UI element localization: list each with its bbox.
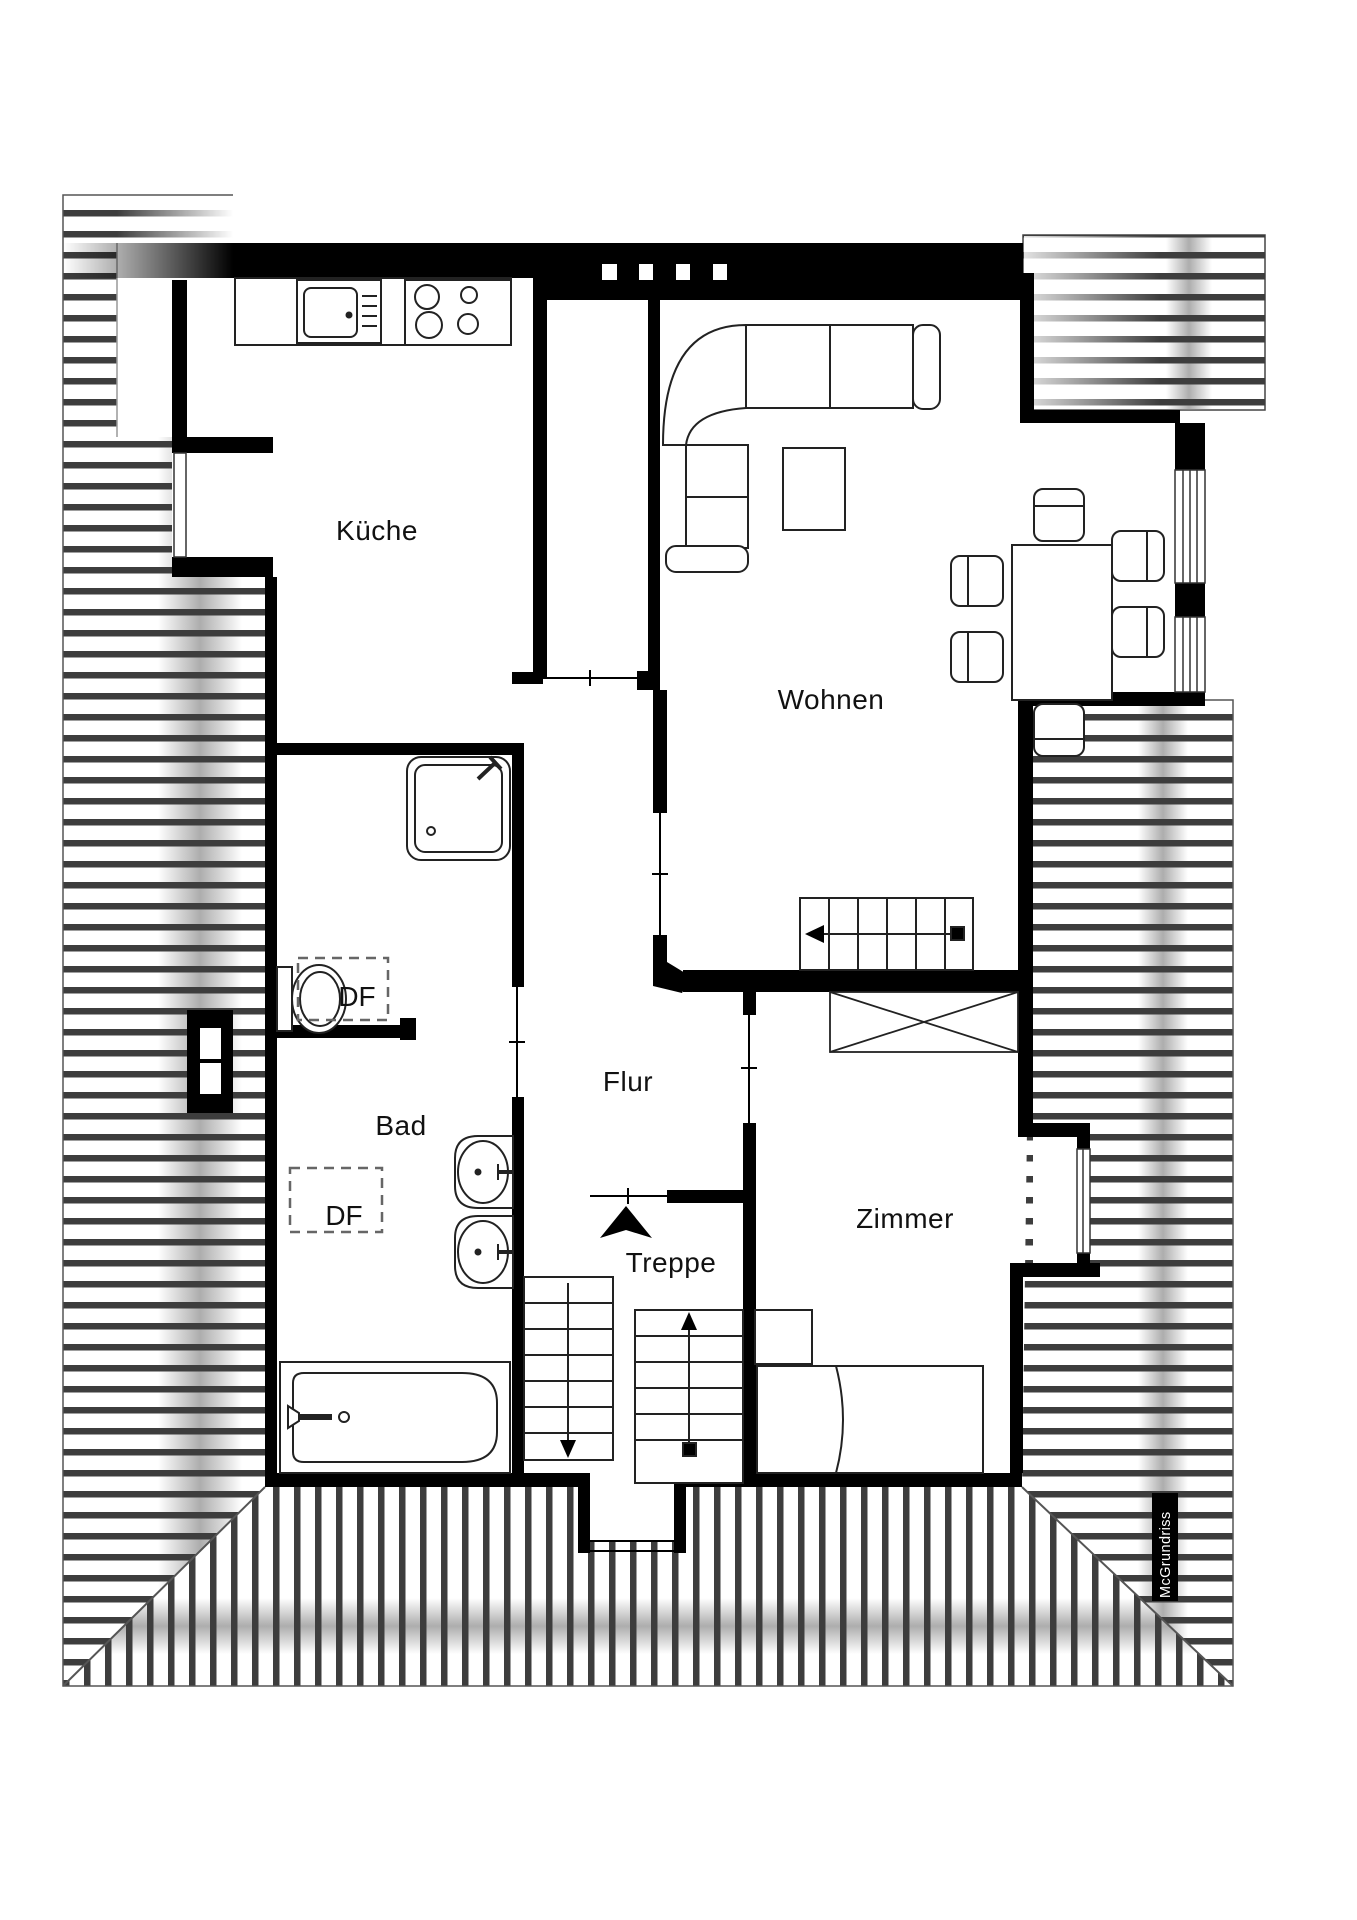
chair-icon <box>1034 489 1084 541</box>
wall-stair-landing <box>683 970 1033 992</box>
wall-living-west <box>648 300 660 672</box>
window-living-1 <box>1175 470 1205 583</box>
floorplan-canvas: Küche Wohnen Bad Flur Treppe Zimmer DF D… <box>0 0 1357 1920</box>
room-label-wohnen: Wohnen <box>778 684 885 715</box>
wall-south-left <box>265 1473 578 1487</box>
door-kitchen <box>543 670 637 686</box>
dining-table-icon <box>1012 545 1112 700</box>
bathtub-icon <box>280 1362 510 1473</box>
room-label-flur: Flur <box>603 1066 653 1097</box>
stairs-down-icon <box>800 898 973 970</box>
roof-hatch-left <box>63 195 265 1686</box>
toilet-icon <box>277 965 346 1033</box>
kitchen-sink-icon <box>297 280 381 343</box>
chair-icon <box>1034 704 1084 756</box>
door-living <box>652 813 668 935</box>
doors <box>509 670 757 1204</box>
door-treppe <box>590 1188 667 1204</box>
wall-dormer-bottom <box>1020 410 1180 423</box>
wall-flur-zimmer <box>743 1123 756 1473</box>
window-living-2 <box>1175 617 1205 692</box>
window-zimmer <box>1077 1149 1090 1253</box>
bed-icon <box>755 1310 983 1473</box>
coffee-table-icon <box>783 448 845 530</box>
room-label-treppe: Treppe <box>626 1247 717 1278</box>
chair-icon <box>1112 607 1164 657</box>
wall-kitchen-east <box>533 243 547 677</box>
nightstand-icon <box>755 1310 812 1364</box>
wall-zimmer-east <box>1010 1277 1023 1473</box>
window-kitchen <box>174 453 186 557</box>
wall-north-fade <box>63 243 233 278</box>
void-cross-icon <box>830 992 1018 1052</box>
room-label-zimmer: Zimmer <box>856 1203 954 1234</box>
room-label-bad: Bad <box>375 1110 426 1141</box>
room-label-kueche: Küche <box>336 515 418 546</box>
wall-west-kitchen <box>172 280 187 443</box>
chair-icon <box>951 556 1003 606</box>
stove-icon <box>405 280 511 345</box>
door-bad <box>509 987 525 1097</box>
floorplan-page: Küche Wohnen Bad Flur Treppe Zimmer DF D… <box>0 0 1357 1920</box>
chair-icon <box>1112 531 1164 581</box>
wall-north-kitchen <box>233 243 540 278</box>
washbasin-icon <box>455 1136 513 1208</box>
chair-icon <box>951 632 1003 682</box>
skylight-label: DF <box>338 981 375 1012</box>
shower-icon <box>407 757 510 860</box>
watermark-label: McGrundriss <box>1158 1511 1174 1598</box>
washbasin-icon <box>455 1216 513 1288</box>
wall-east-lower <box>1018 692 1033 1123</box>
kitchen-counter <box>235 278 511 345</box>
watermark-badge: McGrundriss <box>1152 1493 1178 1601</box>
skylight-label: DF <box>325 1200 362 1231</box>
stairs-icon <box>524 1277 743 1483</box>
wall-kitchen-south <box>265 743 522 755</box>
wall-dormer-left <box>1020 273 1034 423</box>
wall-west-bath <box>265 577 277 1473</box>
entrance-arrow-icon <box>600 1206 652 1238</box>
chimney <box>187 1010 233 1113</box>
door-zimmer <box>741 1015 757 1123</box>
entrance-porch <box>588 1487 676 1542</box>
